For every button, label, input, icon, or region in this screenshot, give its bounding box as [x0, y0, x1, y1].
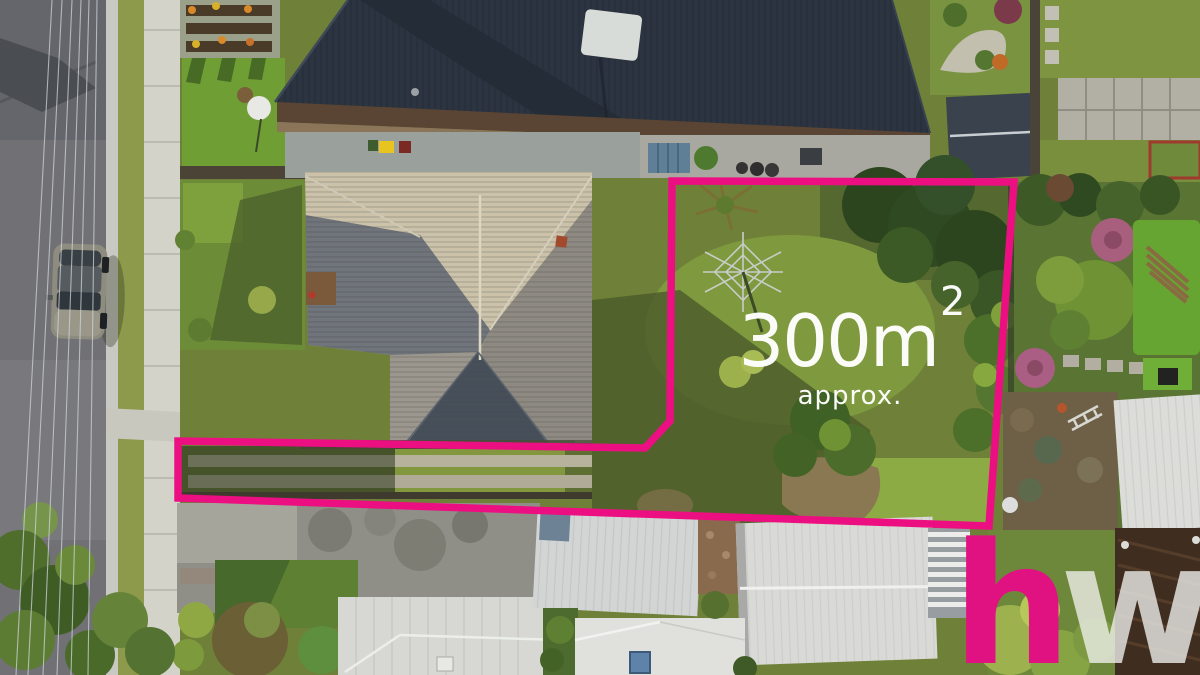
bright-grass: [862, 458, 992, 527]
car-bonnet: [53, 309, 102, 337]
red-bin: [399, 141, 411, 153]
bottom-hip-roof: [575, 618, 745, 675]
top-house: [275, 0, 930, 180]
neighbour-lawn: [1040, 0, 1200, 78]
car-rear-window: [59, 249, 102, 266]
satellite-dish: [247, 96, 271, 120]
strip-shadow: [180, 446, 395, 498]
porch-deck: [306, 272, 336, 305]
slat-awning: [928, 528, 970, 618]
garden-chair: [1158, 368, 1178, 385]
aerial-photo: 300m2 approx. hw: [0, 0, 1200, 675]
brick-patio: [698, 518, 740, 594]
patio: [285, 132, 640, 178]
parked-car: [44, 243, 127, 348]
skylight: [630, 652, 650, 673]
side-fence: [1030, 0, 1040, 185]
driveway-crossover: [106, 408, 180, 442]
car-windshield: [56, 291, 101, 311]
carport-roof: [532, 508, 702, 616]
brick-edged-bed: [1150, 142, 1200, 178]
car-roof: [57, 265, 102, 293]
roof-vent-box: [437, 657, 453, 671]
pots: [765, 163, 779, 177]
aerial-scene: [0, 0, 1200, 675]
ac-unit: [580, 9, 642, 62]
orange-shrub: [992, 54, 1008, 70]
backyard: [592, 155, 1030, 528]
terracotta-pot: [1057, 403, 1067, 413]
chimney: [555, 235, 567, 247]
grass-verge: [118, 0, 144, 675]
roof-vent: [411, 88, 419, 96]
bbq: [800, 148, 822, 165]
green-bin: [368, 140, 378, 151]
patio-plant: [694, 146, 718, 170]
footpath: [144, 0, 180, 675]
right-garden: [1003, 173, 1200, 533]
top-right-neighbour: [930, 0, 1200, 185]
driveway-strip: [180, 443, 645, 499]
yellow-box: [379, 141, 394, 153]
white-bin: [1002, 497, 1018, 513]
big-white-gable-roof: [736, 517, 938, 666]
